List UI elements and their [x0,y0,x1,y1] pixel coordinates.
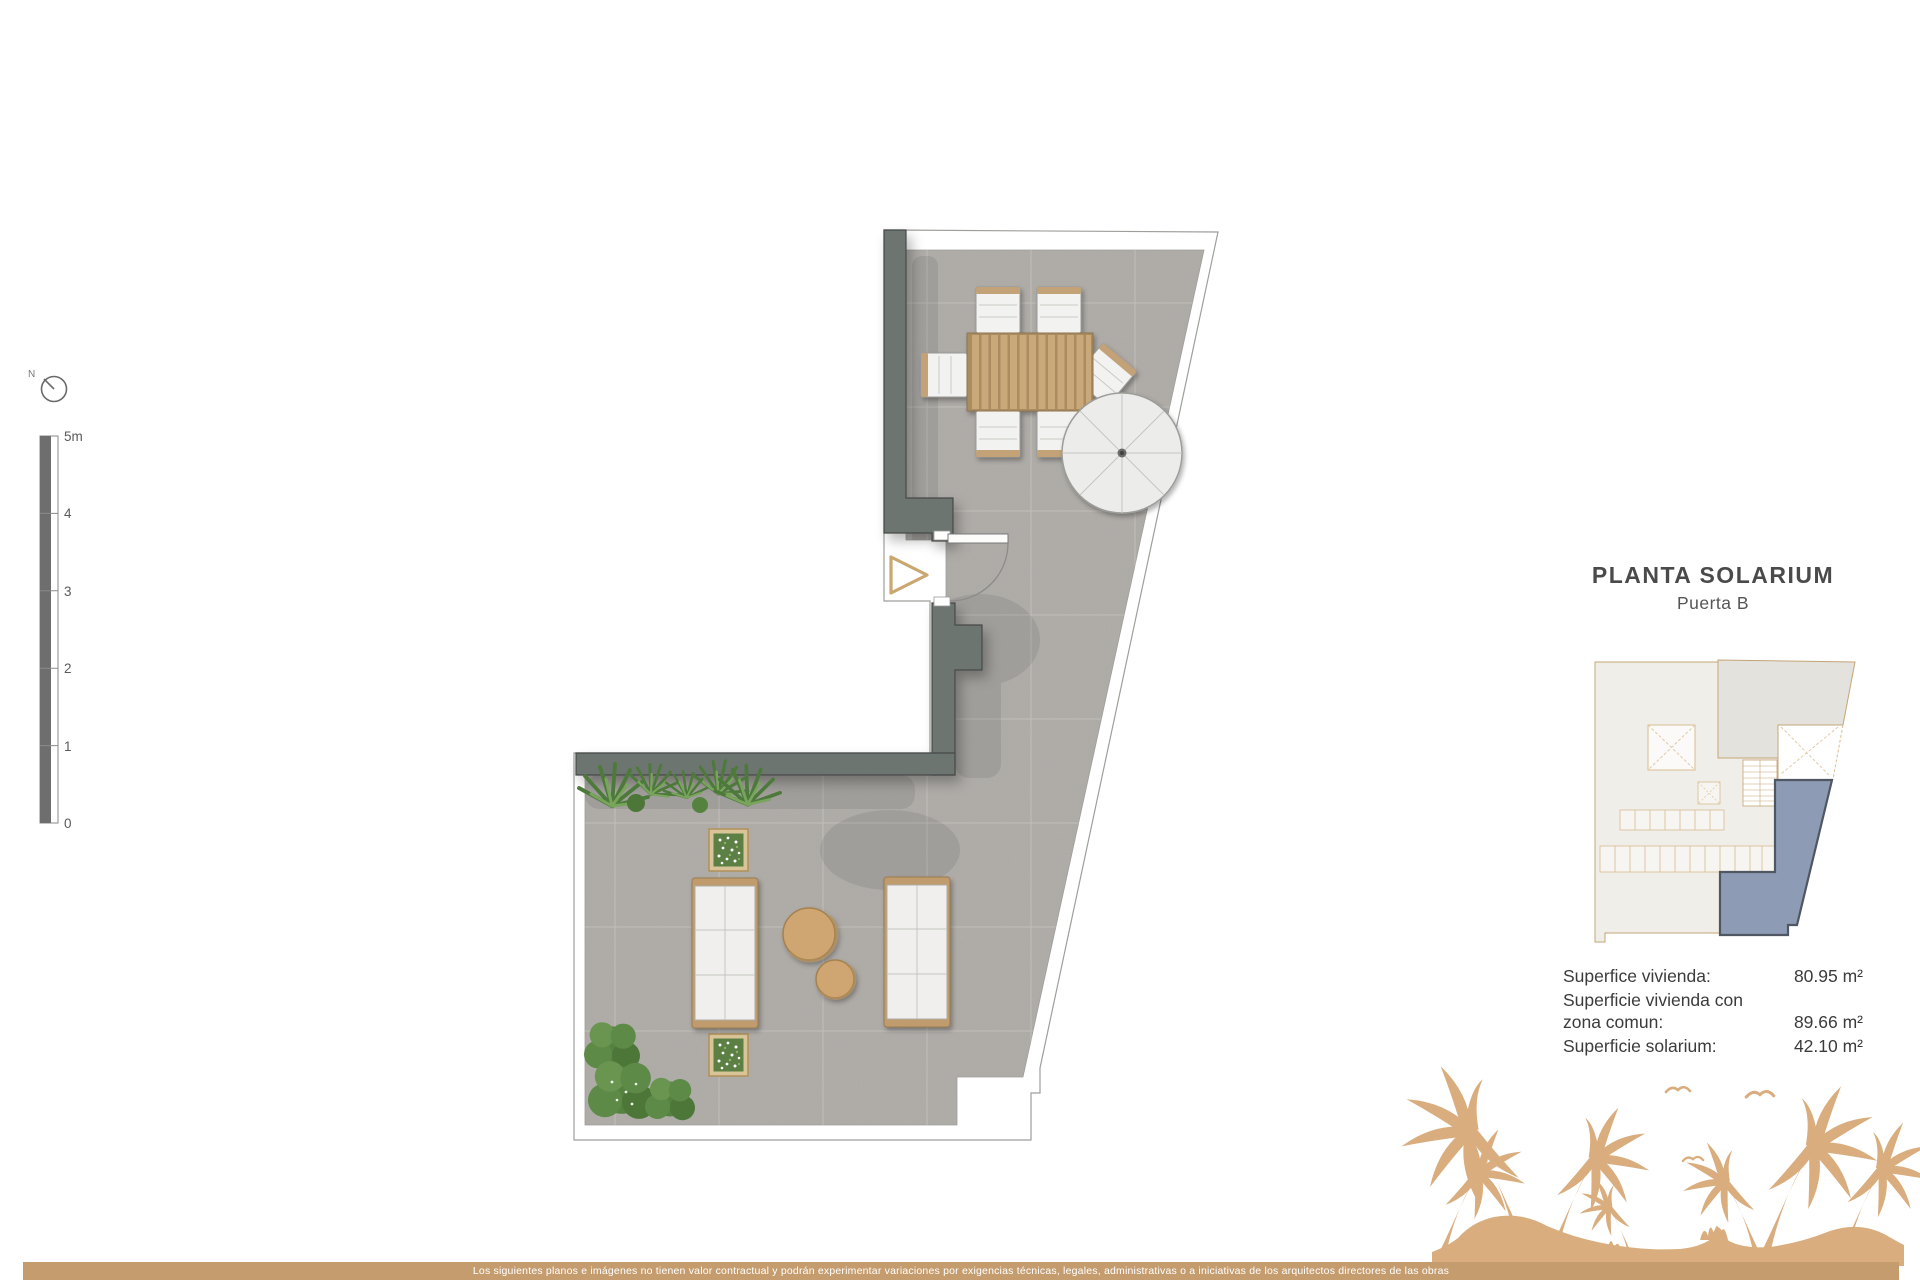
scale-tick-label: 5m [64,429,83,444]
title-block: PLANTA SOLARIUM Puerta B [1537,562,1889,614]
locator-minimap [1595,660,1855,942]
area-value: 42.10 m² [1771,1036,1863,1058]
area-label: Superficie vivienda con zona comun: [1563,990,1771,1034]
wall-horizontal [576,753,955,775]
dining-table [967,333,1093,411]
area-value: 80.95 m² [1771,966,1863,988]
flower-planter [709,1034,748,1076]
scale-tick-label: 4 [64,506,72,521]
north-compass-icon: N [28,369,67,402]
disclaimer-text: Los siguientes planos e imágenes no tien… [473,1266,1449,1277]
minimap-shaft-dashed [1781,727,1838,776]
area-label: Superficie solarium: [1563,1036,1771,1058]
area-row: Superficie solarium: 42.10 m² [1563,1036,1863,1058]
parasol-icon [1062,393,1182,513]
dining-chair [976,287,1020,333]
surface-areas-table: Superfice vivienda: 80.95 m² Superficie … [1563,966,1863,1060]
minimap-stairs [1743,760,1777,806]
bird-icon [1683,1157,1703,1161]
scale-tick-label: 1 [64,739,72,754]
scene-graphics: N 5m 4 3 2 1 0 [0,0,1920,1280]
flower-planter [709,829,748,871]
minimap-shaft [1648,725,1695,770]
sun-lounger-right [884,877,950,1027]
svg-text:N: N [28,369,35,380]
scale-tick-label: 3 [64,584,72,599]
sun-lounger-left [692,878,758,1028]
scale-bar: 5m 4 3 2 1 0 [40,429,83,831]
area-row: Superfice vivienda: 80.95 m² [1563,966,1863,988]
page-subtitle: Puerta B [1537,593,1889,614]
bird-icon [1746,1092,1774,1097]
area-label: Superfice vivienda: [1563,966,1771,988]
page-title: PLANTA SOLARIUM [1537,562,1889,589]
door-leaf [948,534,1008,543]
palm-tree [1548,1107,1650,1253]
minimap-small-shaft [1698,782,1720,804]
floor-plan [511,230,1220,1140]
dining-chair [921,353,967,397]
scale-tick-label: 0 [64,816,72,831]
island-mound [1432,1216,1904,1266]
minimap-upper-block [1718,660,1855,758]
disclaimer-bar: Los siguientes planos e imágenes no tien… [23,1262,1899,1280]
dining-chair [976,411,1020,457]
bird-icon [1666,1087,1690,1092]
page: N 5m 4 3 2 1 0 [0,0,1920,1280]
area-value: 89.66 m² [1771,1012,1863,1034]
scale-tick-label: 2 [64,661,72,676]
dining-chair [1037,287,1081,333]
palm-island-illustration [1401,1066,1920,1266]
area-row: Superficie vivienda con zona comun: 89.6… [1563,990,1863,1034]
